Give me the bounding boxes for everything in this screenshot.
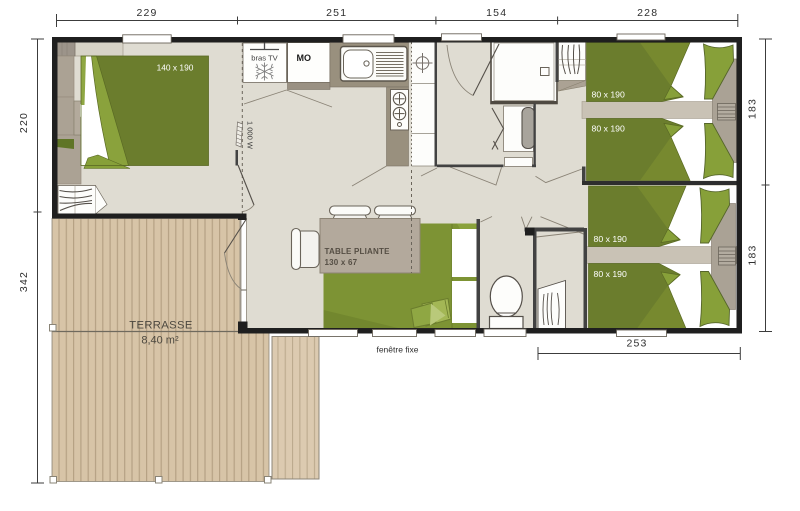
- svg-text:154: 154: [486, 7, 507, 19]
- svg-text:140 x 190: 140 x 190: [157, 63, 194, 73]
- svg-text:MO: MO: [297, 53, 312, 63]
- svg-text:80 x 190: 80 x 190: [594, 269, 627, 279]
- svg-text:342: 342: [18, 271, 30, 292]
- svg-text:229: 229: [136, 7, 157, 19]
- svg-text:220: 220: [18, 112, 30, 133]
- svg-text:8,40 m²: 8,40 m²: [141, 335, 179, 347]
- svg-text:TABLE PLIANTE: TABLE PLIANTE: [325, 247, 391, 256]
- svg-text:80 x 190: 80 x 190: [592, 124, 625, 134]
- svg-text:251: 251: [326, 7, 347, 19]
- svg-text:253: 253: [626, 338, 647, 350]
- svg-text:fenêtre fixe: fenêtre fixe: [376, 345, 418, 355]
- svg-text:183: 183: [747, 98, 759, 119]
- svg-text:TERRASSE: TERRASSE: [129, 320, 193, 332]
- svg-text:130 x 67: 130 x 67: [325, 258, 358, 267]
- svg-text:1 000 W: 1 000 W: [246, 121, 255, 150]
- svg-text:bras TV: bras TV: [251, 54, 278, 63]
- svg-text:80 x 190: 80 x 190: [592, 90, 625, 100]
- svg-text:80 x 190: 80 x 190: [594, 234, 627, 244]
- svg-text:183: 183: [747, 244, 759, 265]
- svg-text:228: 228: [637, 7, 658, 19]
